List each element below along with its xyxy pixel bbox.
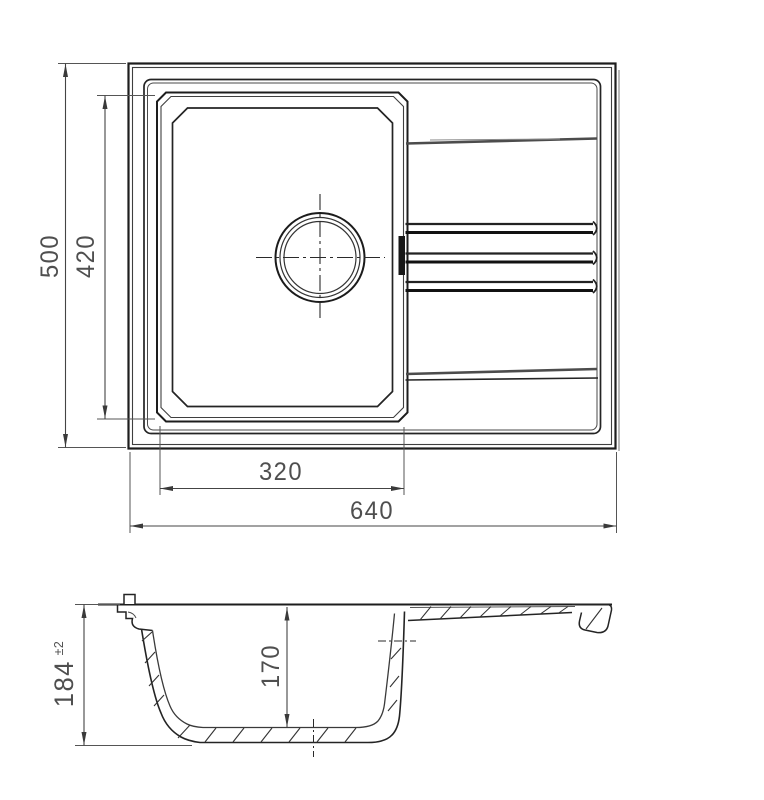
dim-overall-height-tolerance: ±2 — [51, 641, 66, 656]
dim-bowl-width-label: 320 — [243, 459, 319, 485]
dim-overall-height-value: 184 — [49, 660, 80, 707]
dim-bowl-inner-depth-label: 170 — [258, 628, 284, 704]
dim-overall-depth-label: 500 — [37, 218, 63, 294]
dim-overall-width-value: 640 — [350, 497, 394, 526]
top-view — [58, 64, 619, 534]
dim-overall-height-label: 184 ±2 — [50, 622, 78, 727]
drainboard-groove — [406, 280, 597, 294]
section-left-rim — [118, 595, 153, 631]
dim-bowl-depth-lines — [97, 96, 155, 420]
drainboard — [399, 139, 599, 381]
dim-bowl-depth-label: 420 — [73, 218, 99, 294]
sink-rim — [144, 80, 601, 434]
dim-bowl-inner-depth-value: 170 — [257, 644, 286, 688]
dim-overall-depth-value: 500 — [36, 234, 65, 278]
drain-hole — [256, 194, 385, 320]
section-drainboard-lip — [572, 605, 612, 633]
dim-overall-width-label: 640 — [334, 498, 410, 524]
drainboard-groove — [406, 251, 597, 265]
section-drainboard — [408, 605, 612, 633]
technical-drawing-page: 500 420 320 640 184 ±2 170 — [0, 0, 764, 800]
dim-bowl-width-value: 320 — [259, 458, 303, 487]
groove-junction-tab — [399, 236, 406, 275]
dim-bowl-depth-value: 420 — [72, 234, 101, 278]
section-view — [75, 595, 612, 758]
drainboard-groove — [406, 222, 597, 236]
technical-drawing-svg — [0, 0, 764, 800]
